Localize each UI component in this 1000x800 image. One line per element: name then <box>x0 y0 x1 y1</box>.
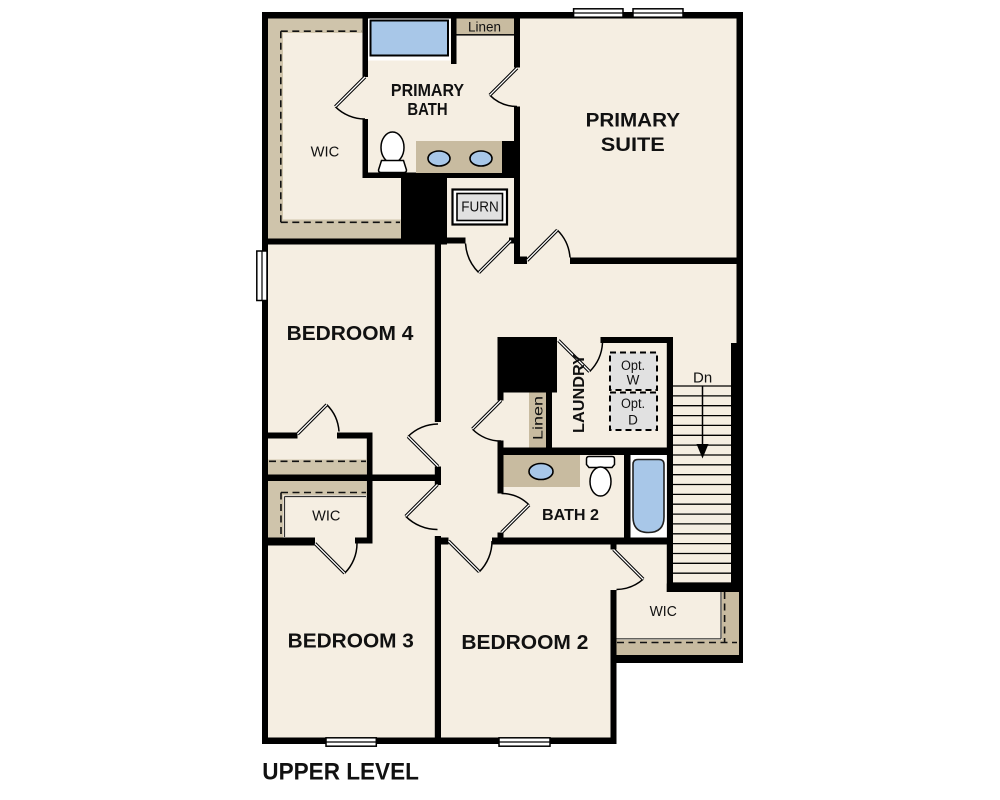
svg-text:WIC: WIC <box>312 509 340 525</box>
svg-text:UPPER LEVEL: UPPER LEVEL <box>262 759 419 786</box>
svg-text:BEDROOM 2: BEDROOM 2 <box>461 632 588 654</box>
svg-text:FURN: FURN <box>461 199 499 216</box>
svg-text:PRIMARY: PRIMARY <box>586 110 681 131</box>
svg-text:Opt.: Opt. <box>621 358 645 373</box>
svg-text:BEDROOM 4: BEDROOM 4 <box>287 323 415 345</box>
svg-text:BATH: BATH <box>407 99 447 119</box>
svg-text:Opt.: Opt. <box>621 396 645 411</box>
svg-text:LAUNDRY: LAUNDRY <box>571 354 588 433</box>
svg-text:WIC: WIC <box>650 604 677 620</box>
svg-text:WIC: WIC <box>311 145 340 161</box>
svg-text:D: D <box>628 413 638 428</box>
svg-text:BATH 2: BATH 2 <box>542 507 599 524</box>
svg-text:PRIMARY: PRIMARY <box>391 80 464 100</box>
svg-text:W: W <box>627 373 640 388</box>
svg-text:SUITE: SUITE <box>601 135 665 156</box>
svg-text:Linen: Linen <box>530 396 546 440</box>
svg-text:Linen: Linen <box>468 19 501 35</box>
svg-text:BEDROOM 3: BEDROOM 3 <box>288 631 414 653</box>
svg-text:Dn: Dn <box>693 369 712 386</box>
